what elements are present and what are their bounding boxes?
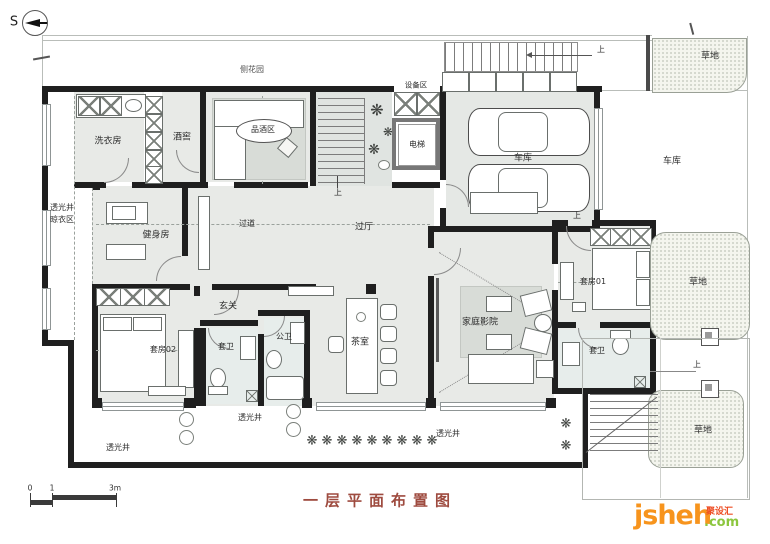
wall [234, 182, 308, 188]
wall [434, 226, 468, 232]
wine-rack-icon [145, 96, 163, 114]
scale-bar-segment [30, 500, 52, 505]
elevator-wall [392, 118, 440, 122]
window [316, 402, 426, 411]
plant-icon: ❋ [561, 439, 572, 454]
wall [476, 226, 538, 232]
wall [182, 188, 188, 256]
console-table [288, 286, 334, 296]
bathtub-icon [266, 376, 304, 400]
desk [178, 330, 194, 388]
wardrobe-icon [590, 228, 612, 246]
wardrobe-icon [96, 288, 122, 306]
label-garage: 车库 [514, 155, 532, 164]
planter [469, 72, 496, 92]
site-boundary-line [42, 35, 652, 36]
elevator-wall [392, 166, 440, 170]
label-up: 上 [693, 361, 701, 369]
wall [74, 182, 106, 188]
wall [592, 220, 656, 226]
elevator-wall [436, 118, 440, 170]
window [42, 288, 51, 330]
washer-icon [78, 96, 100, 116]
column [546, 398, 556, 408]
teapot-icon [356, 312, 366, 322]
label-equipment: 设备区 [405, 81, 428, 89]
treadmill-belt [112, 206, 136, 220]
plant-icon: ❋ [367, 434, 378, 449]
label-lawn: 草地 [694, 427, 712, 436]
console-table [198, 196, 210, 270]
break-mark [690, 23, 695, 35]
elevator-wall [392, 118, 396, 170]
lightwell-west [48, 92, 74, 186]
pillow [636, 279, 650, 306]
plant-icon: ❋ [352, 434, 363, 449]
label-up: 上 [334, 189, 342, 197]
washer-icon [100, 96, 122, 116]
sofa [468, 354, 534, 384]
pillow [636, 251, 650, 278]
wine-rack-icon [145, 114, 163, 132]
planter [496, 72, 523, 92]
wall [132, 182, 208, 188]
stepping-stone [286, 404, 301, 419]
label-lightwell: 透光井 [238, 414, 262, 422]
column [92, 398, 102, 408]
scale-tick-1: 1 [50, 484, 55, 492]
column [184, 398, 196, 408]
label-elevator: 电梯 [409, 141, 425, 149]
wall [200, 86, 206, 186]
wine-rack-icon [145, 166, 163, 184]
window [102, 402, 184, 411]
plant-icon: ❋ [370, 101, 383, 120]
label-up: 上 [597, 46, 605, 54]
speaker-icon [536, 360, 554, 378]
compass-south-label: S [10, 16, 18, 29]
drawing-title: 一层平面布置图 [303, 494, 457, 509]
vanity-icon [562, 342, 580, 366]
wall [68, 340, 74, 468]
pillow [133, 317, 162, 331]
floor-drain-icon [246, 390, 258, 402]
label-up: 上 [573, 212, 581, 220]
exterior-stair [444, 42, 578, 72]
wall [194, 286, 200, 296]
lawn-patch [652, 38, 747, 93]
label-lightwell: 透光井 [106, 444, 130, 452]
wine-rack-icon [145, 132, 163, 150]
wardrobe-icon [610, 228, 632, 246]
label-tea-room: 茶室 [351, 339, 369, 348]
watermark-tld: .com [704, 515, 739, 530]
column [302, 398, 312, 408]
stepping-stone [179, 430, 194, 445]
wall [200, 328, 206, 406]
label-suite-bath: 套卫 [218, 343, 234, 351]
wall [440, 86, 446, 180]
up-arrow [337, 176, 338, 188]
wardrobe-icon [630, 228, 652, 246]
scale-tick-0: 0 [28, 484, 33, 492]
projector-icon [534, 314, 552, 332]
plant-icon: ❋ [382, 434, 393, 449]
pillow [103, 317, 132, 331]
wall [42, 86, 394, 92]
compass-needle-icon [40, 22, 47, 24]
window [440, 402, 546, 411]
label-suite02: 套房02 [150, 346, 176, 354]
stepping-stone [286, 422, 301, 437]
wardrobe-icon [120, 288, 146, 306]
planter [550, 72, 577, 92]
plant-icon: ❋ [561, 417, 572, 432]
label-lightwell: 透光井 [436, 430, 460, 438]
toilet-icon [210, 368, 226, 388]
projection-screen [436, 278, 439, 362]
chair [380, 348, 397, 364]
sink-icon [125, 99, 142, 112]
chair [380, 370, 397, 386]
label-laundry: 洗衣房 [94, 138, 121, 147]
plant-icon: ❋ [397, 434, 408, 449]
scale-mark [116, 493, 117, 507]
fence-wall [646, 35, 650, 91]
wardrobe-icon [144, 288, 170, 306]
label-drying-area: 晾衣区 [50, 216, 74, 224]
wall [258, 334, 264, 406]
plant-icon: ❋ [337, 434, 348, 449]
label-public-bath: 公卫 [276, 333, 292, 341]
plant-icon: ❋ [307, 434, 318, 449]
label-home-theater: 家庭影院 [462, 319, 498, 328]
scale-bar-segment [52, 495, 116, 500]
toilet-tank [208, 386, 228, 395]
wall [600, 322, 656, 328]
chair [380, 326, 397, 342]
side-table [486, 334, 512, 350]
watermark-brand: jsheh [634, 500, 711, 531]
workout-bench [106, 244, 146, 260]
site-boundary-line [42, 40, 652, 41]
opening-line [92, 188, 93, 284]
plant-icon: ❋ [322, 434, 333, 449]
equipment-unit-icon [394, 92, 417, 116]
label-lawn: 草地 [689, 279, 707, 288]
label-wine-tasting: 品酒区 [251, 126, 275, 134]
planter [523, 72, 550, 92]
wall [428, 276, 434, 406]
dresser [560, 262, 574, 300]
equipment-unit-icon [417, 92, 440, 116]
path-line [660, 338, 661, 498]
opening-line [74, 96, 75, 340]
wall [552, 220, 558, 264]
compass-needle-icon [25, 19, 40, 27]
tv-cabinet [148, 386, 186, 396]
lightwell-west [74, 342, 92, 406]
wall [200, 320, 258, 326]
label-side-garden: 侧花园 [240, 66, 264, 74]
label-gym: 健身房 [142, 232, 169, 241]
label-lawn: 草地 [701, 53, 719, 62]
side-table [486, 296, 512, 312]
up-arrow [528, 55, 592, 56]
centerline [96, 224, 430, 225]
wall [552, 322, 576, 328]
chair [380, 304, 397, 320]
bench [572, 302, 586, 312]
wall [68, 462, 588, 468]
toilet-icon [266, 350, 282, 369]
label-garage-outdoor: 车库 [663, 158, 681, 167]
decor-stone [378, 160, 390, 170]
stair-rail [364, 98, 365, 184]
wall [428, 226, 434, 248]
stepping-stone [179, 412, 194, 427]
wall [194, 328, 200, 406]
column [426, 398, 436, 408]
vanity-icon [240, 336, 256, 360]
label-foyer: 玄关 [219, 303, 237, 312]
label-lightwell-west: 透光井 [50, 204, 74, 212]
rail-line [650, 371, 696, 372]
column [366, 284, 376, 294]
wall [392, 182, 440, 188]
plant-icon: ❋ [412, 434, 423, 449]
label-corridor: 过道 [239, 220, 255, 228]
floor-plan: S [0, 0, 770, 544]
label-hall: 过厅 [355, 224, 373, 233]
plant-icon: ❋ [368, 142, 380, 158]
chair [328, 336, 344, 353]
up-arrow-head [526, 52, 532, 58]
wall [310, 86, 316, 186]
label-suite-bath: 套卫 [589, 347, 605, 355]
window [42, 104, 51, 166]
car-cabin [498, 112, 548, 152]
planter [442, 72, 469, 92]
label-wine-cellar: 酒窖 [173, 134, 191, 143]
vanity-icon [290, 322, 305, 344]
stair-treads [318, 98, 364, 184]
wall [552, 290, 558, 394]
scale-tick-3m: 3m [109, 484, 121, 492]
bench [470, 192, 538, 214]
label-suite01: 套房01 [580, 278, 606, 286]
site-boundary-line [42, 36, 43, 86]
column [92, 182, 100, 190]
garage-door [594, 108, 603, 210]
